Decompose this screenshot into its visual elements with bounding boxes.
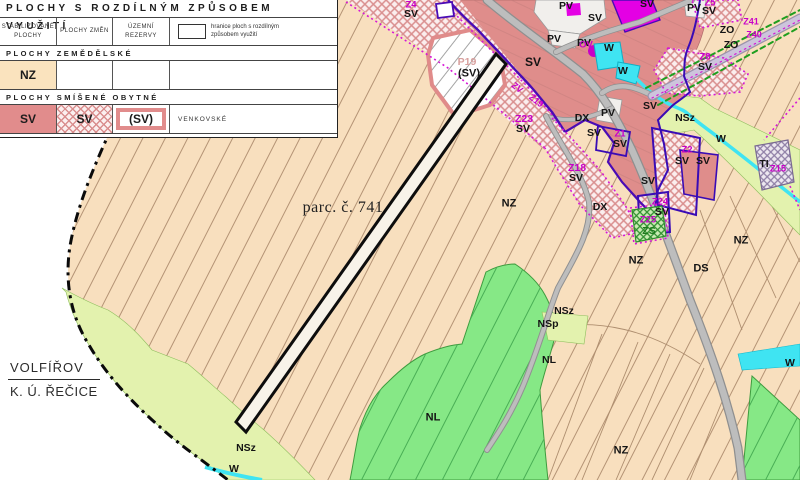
sv-change-swatch: SV (57, 105, 113, 133)
legend-panel: PLOCHY S ROZDÍLNÝM ZPŮSOBEM VYUŽITÍ STAB… (0, 0, 338, 138)
sv-stable-swatch: SV (0, 105, 57, 133)
sv-reserve-swatch: (SV) (113, 105, 170, 133)
legend-col-reserves: ÚZEMNÍ REZERVY (113, 18, 170, 45)
sv-change-label: SV (76, 112, 92, 126)
cadastral-label: VOLFÍŘOV K. Ú. ŘEČICE (6, 358, 116, 401)
legend-col-stabilized: STABILIZOVANÉ PLOCHY (0, 18, 57, 45)
municipality-name: VOLFÍŘOV (6, 358, 116, 379)
legend-title: PLOCHY S ROZDÍLNÝM ZPŮSOBEM VYUŽITÍ (0, 0, 337, 18)
empty-cell (170, 61, 337, 89)
empty-cell (113, 61, 170, 89)
nz-swatch: NZ (0, 61, 57, 89)
sv-stable-label: SV (20, 112, 36, 126)
boundary-note: hranice ploch s rozdílným způsobem využi… (211, 24, 307, 40)
boundary-swatch (178, 24, 206, 39)
legend-section-mixed: PLOCHY SMÍŠENÉ OBYTNÉ (0, 90, 337, 105)
nz-swatch-label: NZ (20, 68, 36, 82)
zoning-map-page: SVSVSVSVSVSVSVSVSVSVSVSVSVSVSV(SV)P19PVP… (0, 0, 800, 480)
sv-reserve-label: (SV) (129, 112, 153, 126)
empty-cell (57, 61, 113, 89)
legend-col-changes: PLOCHY ZMĚN (57, 18, 113, 45)
venkovske-note: VENKOVSKÉ (178, 116, 227, 123)
cadastre-name: K. Ú. ŘEČICE (6, 380, 116, 401)
legend-section-agricultural: PLOCHY ZEMĚDĚLSKÉ (0, 46, 337, 61)
mixed-note-cell: VENKOVSKÉ (170, 105, 337, 133)
